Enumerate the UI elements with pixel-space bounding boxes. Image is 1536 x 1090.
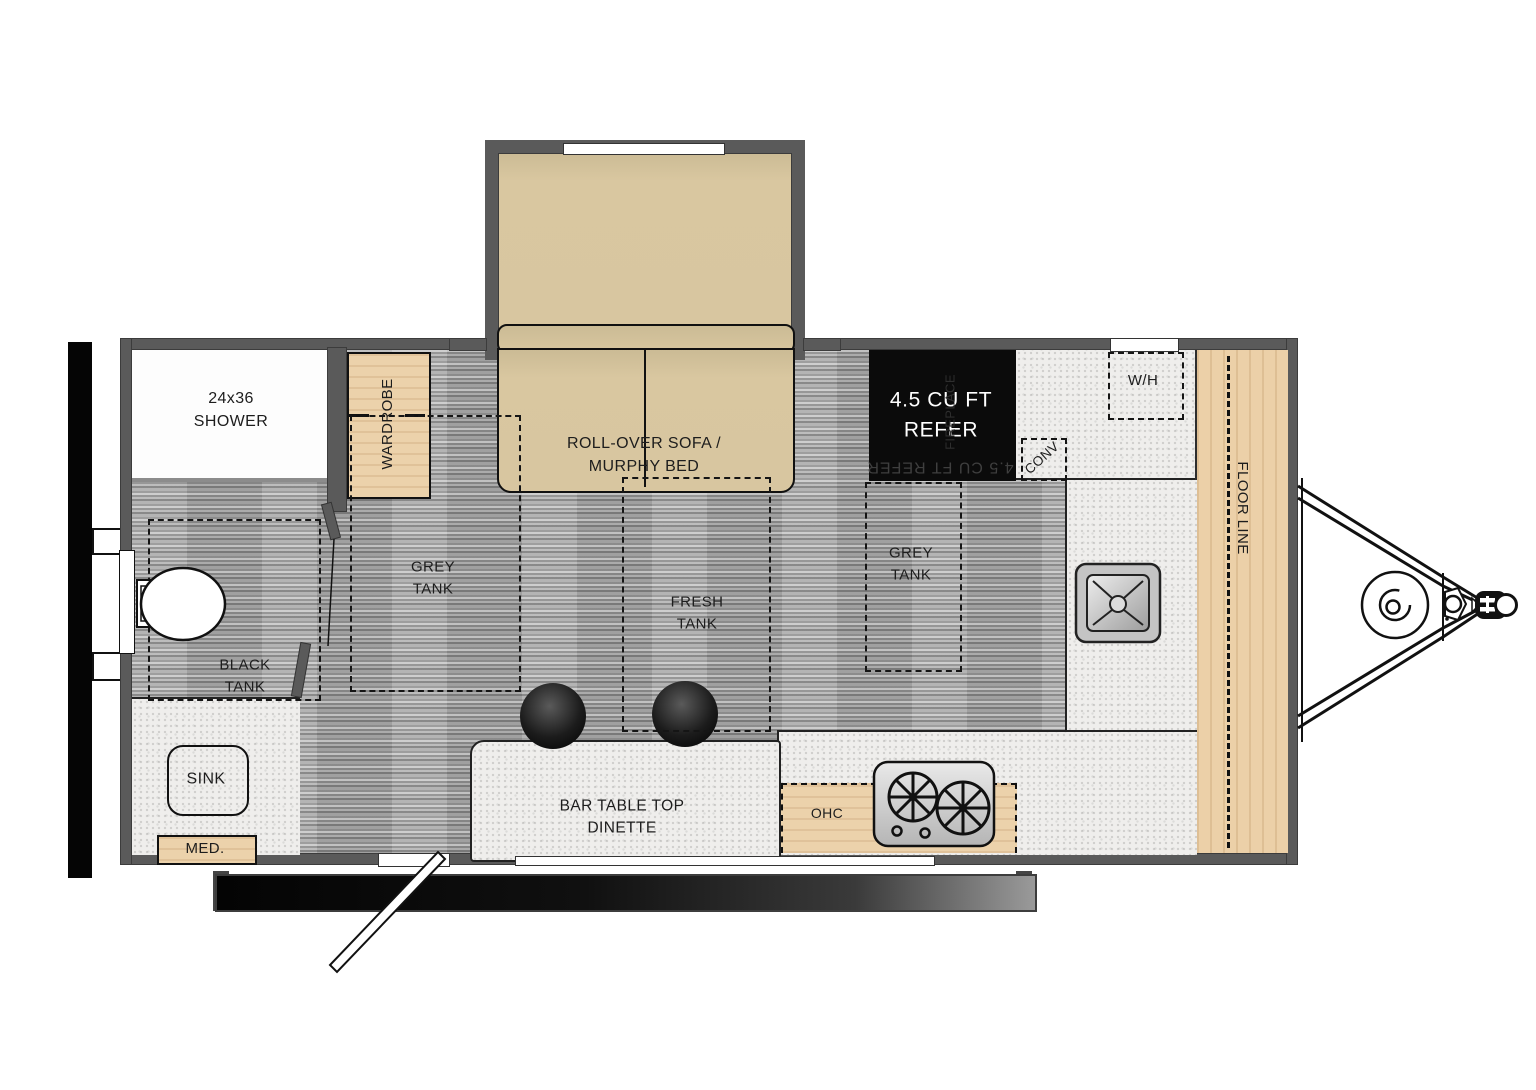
bath-divider-wall-top <box>327 347 347 512</box>
refrigerator-ghost-label: 4.5 CU FT REFER <box>866 455 1013 478</box>
slideout-window <box>563 143 725 155</box>
wardrobe-label: WARDROBE <box>377 379 399 470</box>
shower-label: 24x36SHOWER <box>194 387 268 433</box>
rear-wall-opening <box>119 550 135 654</box>
stool-left <box>520 683 586 749</box>
front-floor-line-strip <box>1195 350 1288 853</box>
bath-sink-label: SINK <box>187 767 226 790</box>
entry-door-leaf <box>330 852 445 972</box>
slide-flange-right <box>803 338 841 351</box>
entry-door-opening <box>378 853 450 867</box>
rear-bumper-bar <box>68 342 92 878</box>
black-tank-label: BLACKTANK <box>219 654 270 698</box>
tongue-jack-icon <box>1445 588 1466 621</box>
step-rail-bar <box>215 874 1037 912</box>
slide-flange-left <box>449 338 487 351</box>
propane-tank-icon <box>1362 572 1428 638</box>
grey-tank-1-outline <box>350 415 521 692</box>
ohc-label: OHC <box>811 803 843 823</box>
floor-line-dashes <box>1227 356 1230 848</box>
counter-front-side <box>1065 480 1197 730</box>
med-cabinet-label: MED. <box>185 838 224 860</box>
dinette-label: BAR TABLE TOPDINETTE <box>560 796 685 841</box>
hitch-aframe <box>1298 478 1479 742</box>
window-over-water-heater <box>1110 338 1179 352</box>
floorplan-canvas: 24x36SHOWER WARDROBE ROLL-OVER SOFA /MUR… <box>0 0 1536 1090</box>
water-heater-label: W/H <box>1128 370 1158 392</box>
floor-line-label: FLOOR LINE <box>1231 461 1253 554</box>
bottom-window-strip <box>515 856 935 866</box>
wall-top-right <box>790 338 1298 350</box>
grey-tank-2-label: GREYTANK <box>889 542 933 586</box>
fireplace-label: FIREPLACE <box>942 374 961 450</box>
fresh-tank-label: FRESHTANK <box>671 591 724 635</box>
sofa-label: ROLL-OVER SOFA /MURPHY BED <box>567 432 721 478</box>
wall-top-left <box>120 338 500 350</box>
grey-tank-1-label: GREYTANK <box>411 556 455 600</box>
shower-edge <box>132 478 327 482</box>
coupler-icon <box>1472 591 1517 619</box>
